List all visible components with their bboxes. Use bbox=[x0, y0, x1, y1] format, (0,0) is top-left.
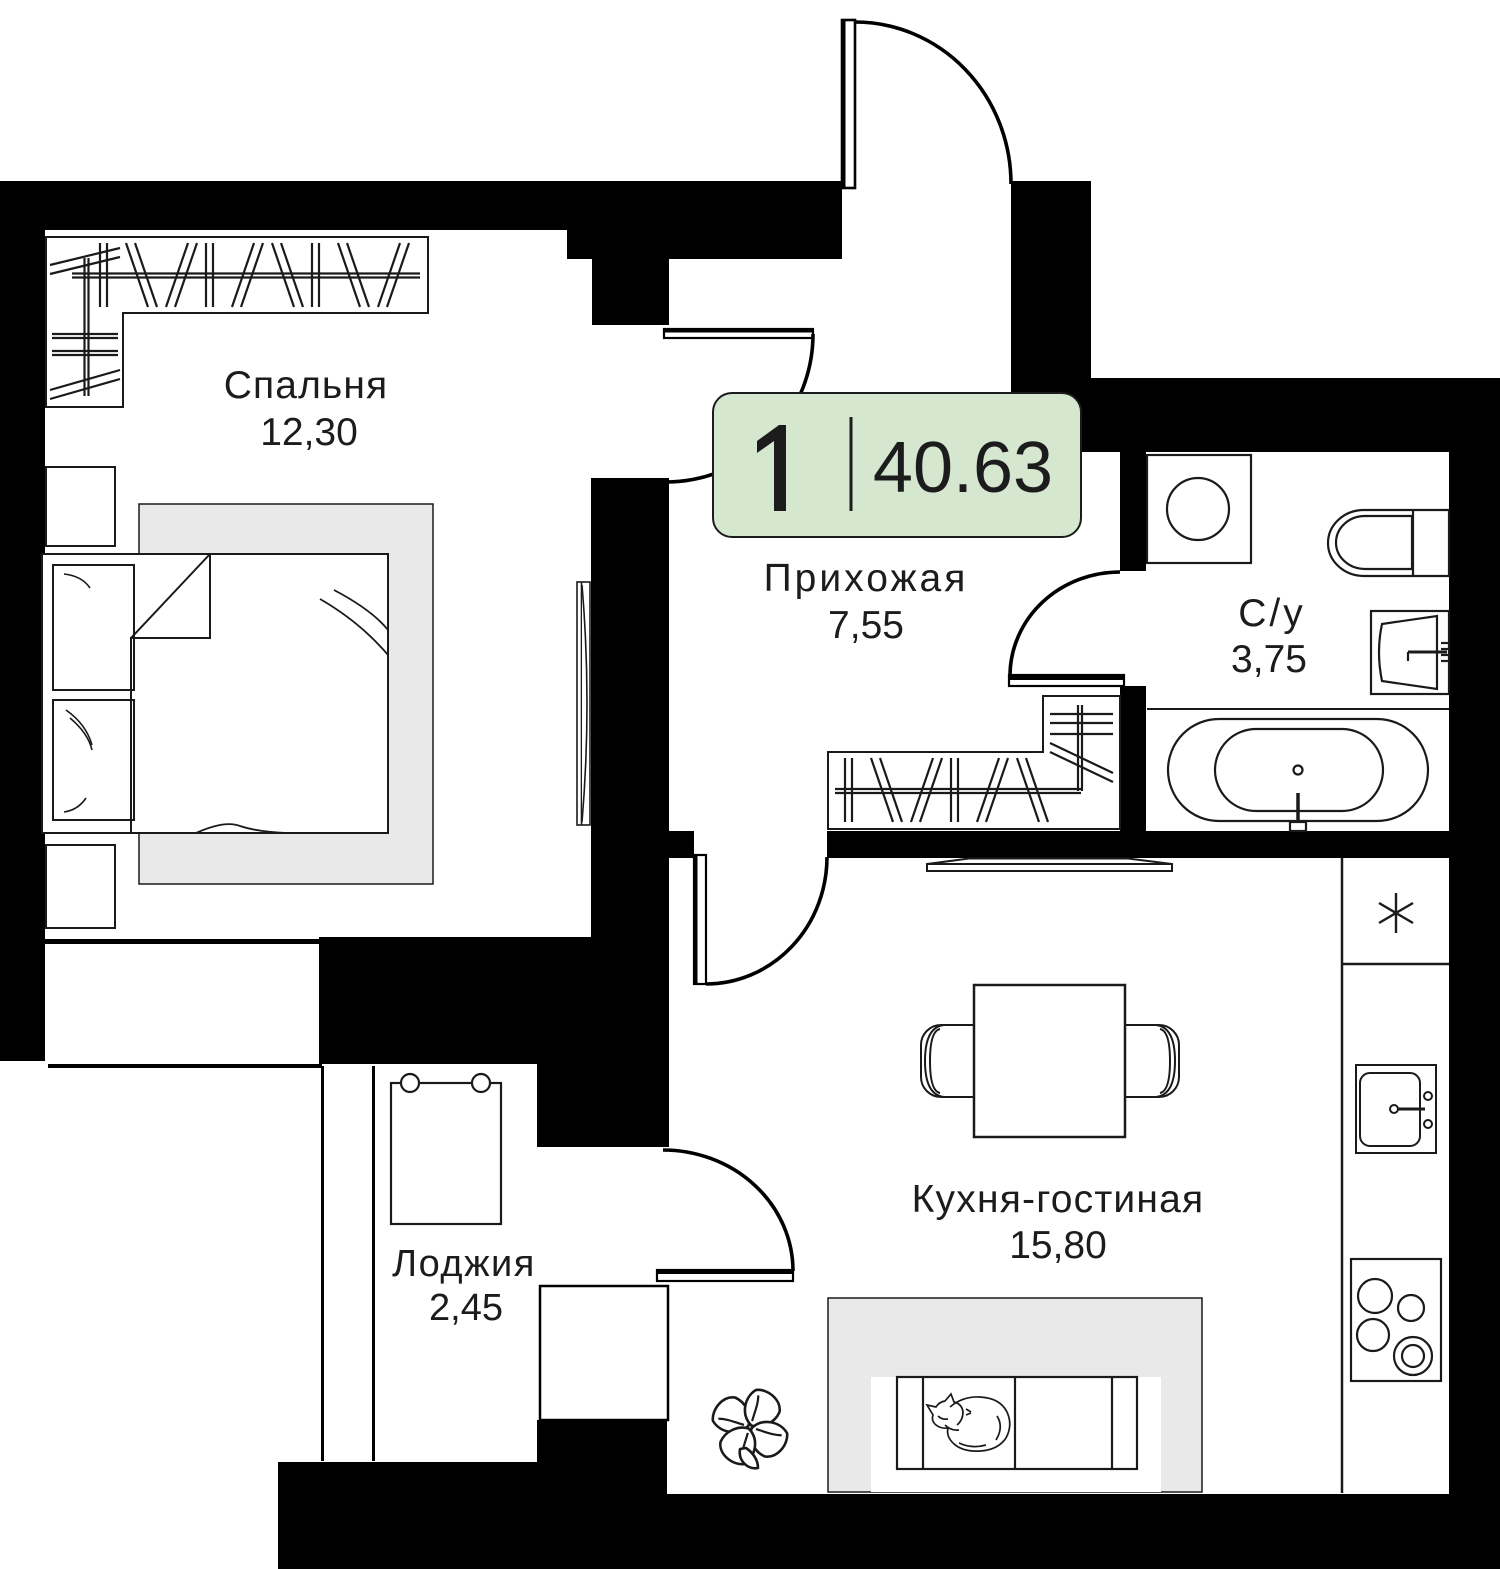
svg-text:С/у: С/у bbox=[1238, 592, 1306, 635]
svg-text:12,30: 12,30 bbox=[260, 411, 358, 454]
svg-text:7,55: 7,55 bbox=[828, 604, 904, 647]
svg-text:15,80: 15,80 bbox=[1009, 1224, 1107, 1267]
svg-text:3,75: 3,75 bbox=[1231, 638, 1307, 681]
svg-text:2,45: 2,45 bbox=[429, 1287, 503, 1329]
svg-text:Спальня: Спальня bbox=[224, 364, 388, 407]
svg-text:Лоджия: Лоджия bbox=[392, 1243, 536, 1285]
svg-text:Прихожая: Прихожая bbox=[764, 557, 969, 600]
svg-text:Кухня-гостиная: Кухня-гостиная bbox=[912, 1178, 1205, 1221]
svg-text:40.63: 40.63 bbox=[873, 428, 1053, 508]
